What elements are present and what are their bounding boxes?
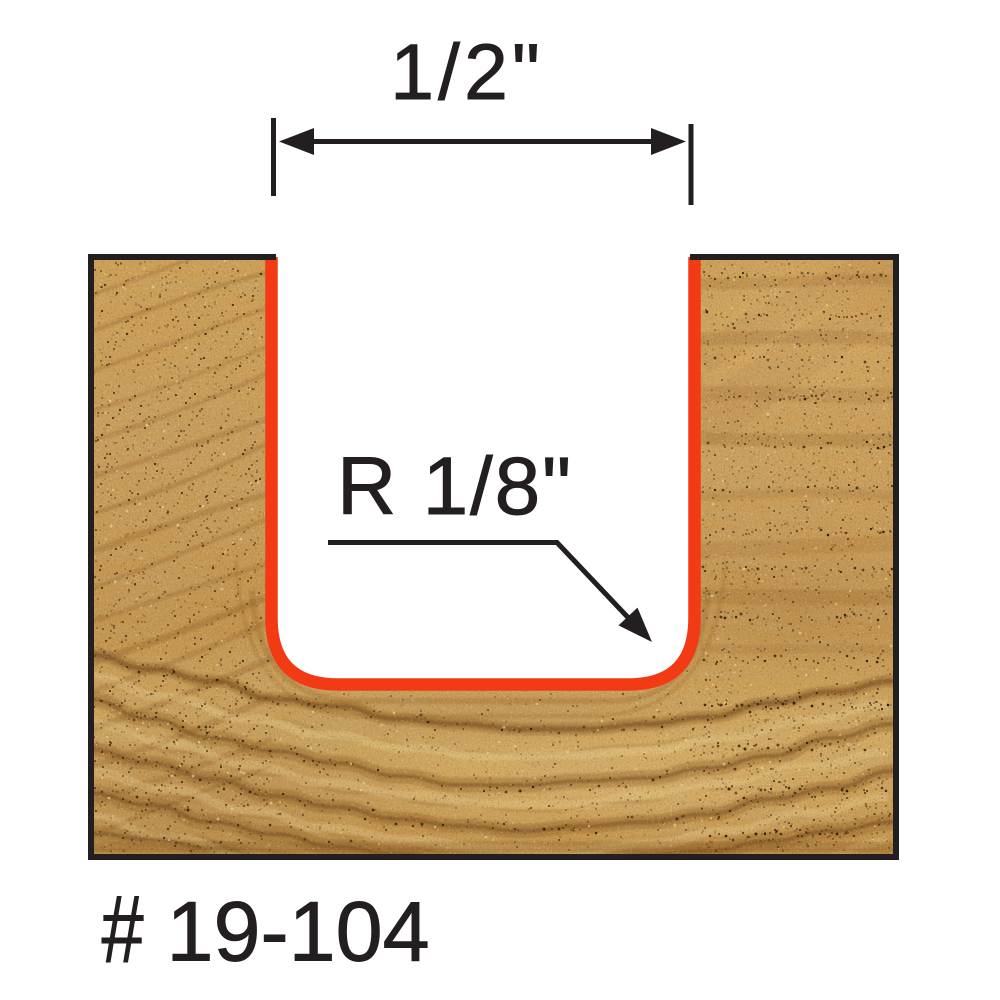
svg-text:1/2": 1/2" [390, 27, 544, 116]
svg-text:19-104: 19-104 [167, 885, 430, 979]
svg-text:#: # [102, 877, 144, 984]
svg-text:R 1/8": R 1/8" [337, 441, 573, 532]
